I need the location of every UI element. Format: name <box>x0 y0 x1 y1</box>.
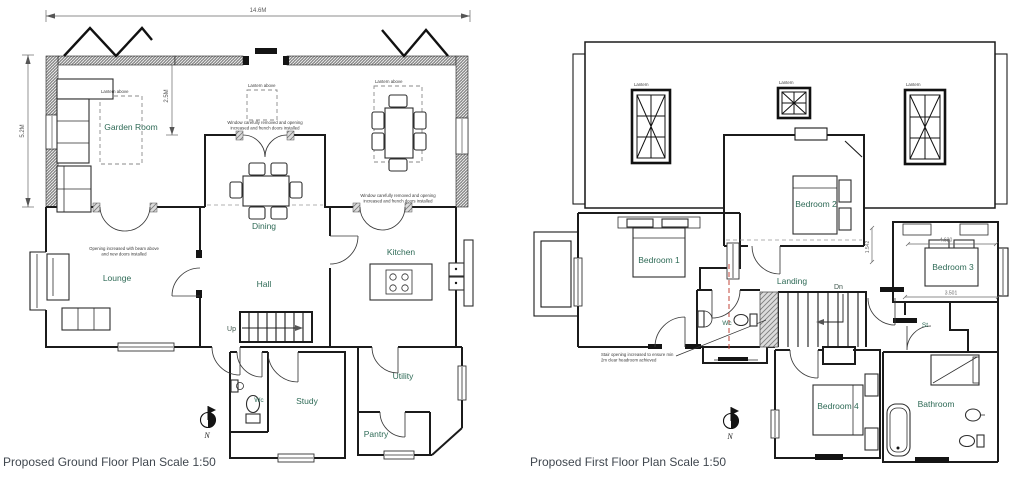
floor-plans-drawing: 14.6M 5.2M 2.5M <box>0 0 1024 493</box>
stairs-up-label: Up <box>227 326 236 333</box>
north-arrow-icon: N <box>201 406 217 440</box>
lounge-sofa <box>62 308 110 330</box>
lantern-rooflight-1 <box>632 90 670 163</box>
north-label-first: N <box>726 432 733 441</box>
label-bedroom4: Bedroom 4 <box>817 401 859 411</box>
toilet-first <box>960 435 985 447</box>
dim-bedroom3-width: 4.630 <box>940 238 953 244</box>
dining-table <box>230 163 302 219</box>
kitchen-island <box>370 264 432 300</box>
lantern-rooflight-2 <box>778 88 810 118</box>
kitchen-appliances <box>449 240 473 306</box>
label-landing: Landing <box>777 276 808 286</box>
label-bedroom1: Bedroom 1 <box>638 255 680 265</box>
lantern-rooflight-3 <box>905 90 945 164</box>
bed-3 <box>903 224 988 286</box>
note-lantern-f1: Lantern <box>634 82 649 87</box>
bifold-door-symbol-right <box>382 30 448 56</box>
dim-overall-depth: 5.2M <box>20 124 26 137</box>
dim-overall-width: 14.6M <box>250 8 267 14</box>
note-lantern-3: Lantern above <box>375 79 403 84</box>
breakfast-table <box>372 95 426 171</box>
dim-garden-depth: 2.5M <box>164 89 170 102</box>
label-pantry: Pantry <box>364 429 389 439</box>
note-stair-b: 2m clear headroom achieved <box>601 358 657 363</box>
label-wc-first: Wc <box>722 320 732 327</box>
note-window-2b: increased and french doors installed <box>363 199 433 204</box>
note-window-1a: Window carefully removed and opening <box>227 120 303 125</box>
bed-1 <box>618 217 700 277</box>
north-label: N <box>203 431 210 440</box>
label-store: St <box>922 322 928 329</box>
label-bedroom2: Bedroom 2 <box>795 199 837 209</box>
first-floor-furniture <box>618 176 988 456</box>
stairs-down: Dn <box>788 284 858 347</box>
note-lounge-a: Opening increased with beam above <box>89 246 159 251</box>
roof-outline <box>585 42 995 208</box>
basin <box>966 409 986 421</box>
dim-side-offset: 1.542 <box>865 241 871 254</box>
first-floor-title: Proposed First Floor Plan Scale 1:50 <box>530 455 726 469</box>
label-lounge: Lounge <box>103 273 132 283</box>
label-wc-ground: Wc <box>254 397 264 404</box>
north-arrow-icon-first: N <box>724 407 740 441</box>
shower <box>931 355 979 385</box>
ground-floor-plan: 14.6M 5.2M 2.5M <box>3 8 473 469</box>
note-window-1b: increased and french doors installed <box>230 126 300 131</box>
label-bedroom3: Bedroom 3 <box>932 262 974 272</box>
note-lantern-f2: Lantern <box>779 80 794 85</box>
stair-opening-hatch <box>760 292 778 347</box>
note-window-2a: Window carefully removed and opening <box>360 193 436 198</box>
note-stair-a: Stair opening increased to ensure min <box>601 352 674 357</box>
label-dining: Dining <box>252 221 276 231</box>
label-hall: Hall <box>257 279 272 289</box>
architectural-drawing-sheet: 14.6M 5.2M 2.5M <box>0 0 1024 493</box>
label-kitchen: Kitchen <box>387 247 416 257</box>
stairs-up: Up <box>227 312 303 342</box>
ground-floor-title: Proposed Ground Floor Plan Scale 1:50 <box>3 455 216 469</box>
label-utility: Utility <box>393 371 415 381</box>
note-lounge-b: and new doors installed <box>101 252 147 257</box>
stairs-down-label: Dn <box>834 284 843 291</box>
dim-landing-width: 3.501 <box>945 291 958 297</box>
label-garden-room: Garden Room <box>104 122 157 132</box>
bifold-door-symbol-left <box>64 28 152 56</box>
bath <box>887 404 910 456</box>
bed-4 <box>813 374 878 450</box>
note-lantern-2: Lantern above <box>248 83 276 88</box>
first-floor-plan: Dn <box>530 42 1008 469</box>
note-lantern-1: Lantern above <box>101 89 129 94</box>
label-bathroom: Bathroom <box>918 399 955 409</box>
label-study: Study <box>296 396 318 406</box>
lounge-armchair <box>47 254 69 300</box>
note-lantern-f3: Lantern <box>906 82 921 87</box>
